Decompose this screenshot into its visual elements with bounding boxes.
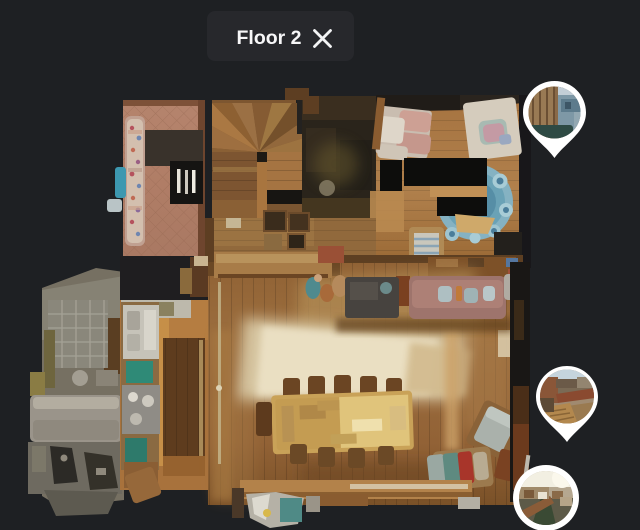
svg-text:Floor 2: Floor 2 — [237, 27, 302, 49]
